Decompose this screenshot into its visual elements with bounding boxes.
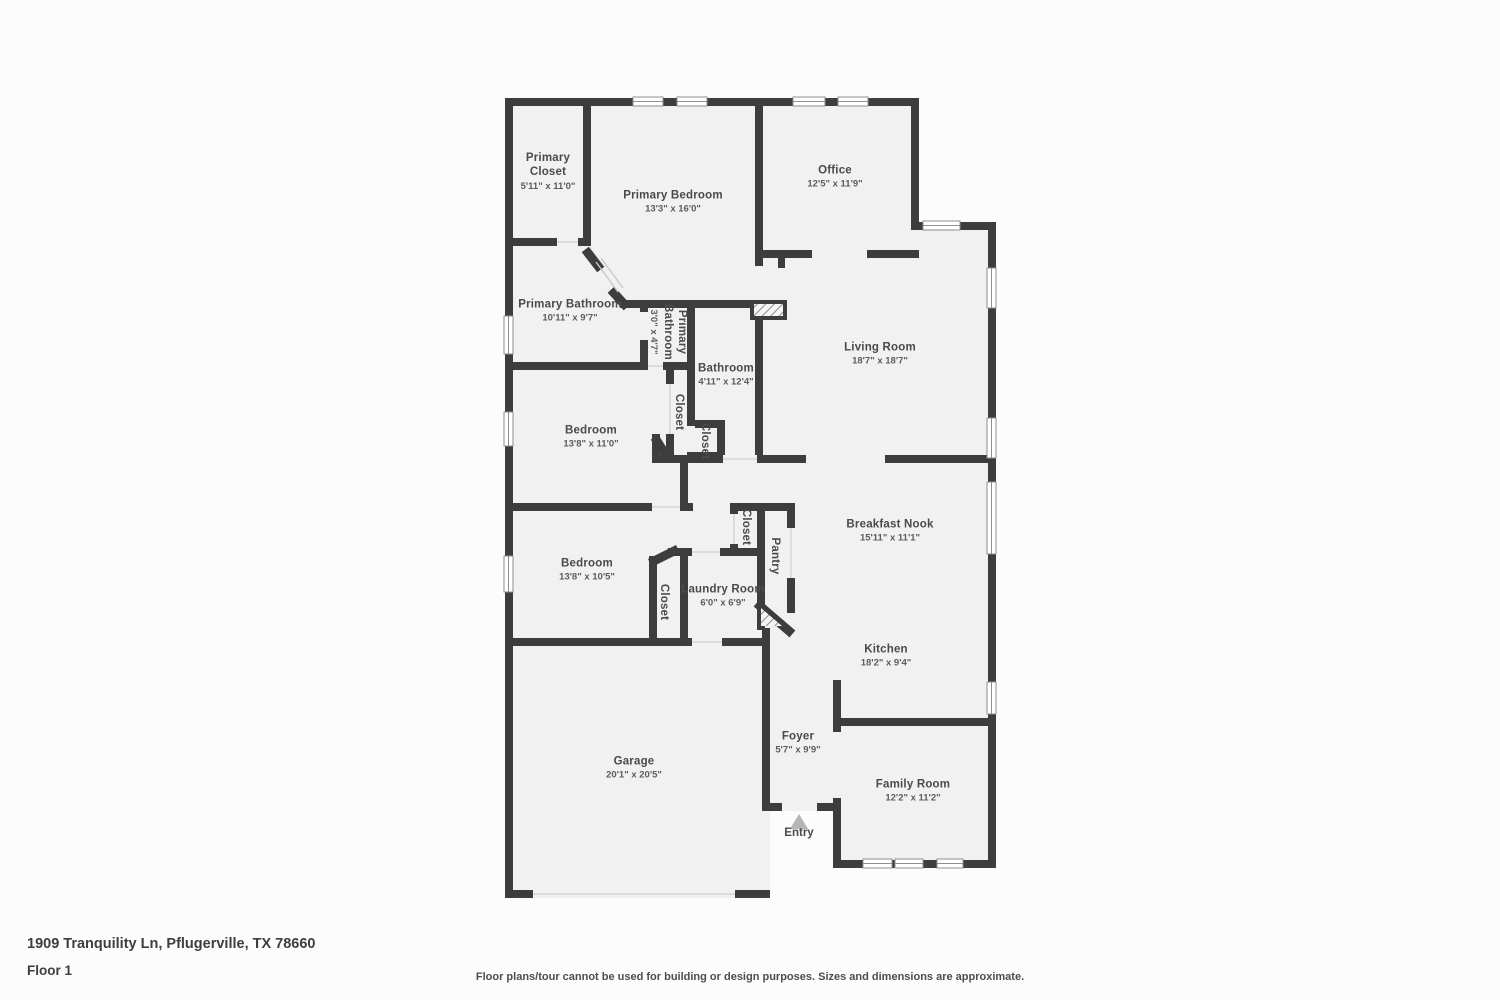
entry-label: Entry bbox=[784, 827, 813, 839]
fireplace-hatch bbox=[752, 302, 785, 318]
footer-disclaimer: Floor plans/tour cannot be used for buil… bbox=[476, 971, 1024, 983]
footer-address: 1909 Tranquility Ln, Pflugerville, TX 78… bbox=[27, 936, 316, 952]
footer-floor-label: Floor 1 bbox=[27, 963, 72, 978]
floor-plan-page: Primary Closet5'11" x 11'0" Primary Bedr… bbox=[0, 0, 1500, 1000]
floor-plan-drawing bbox=[0, 0, 1500, 1000]
floor-fill-layer bbox=[505, 98, 996, 898]
